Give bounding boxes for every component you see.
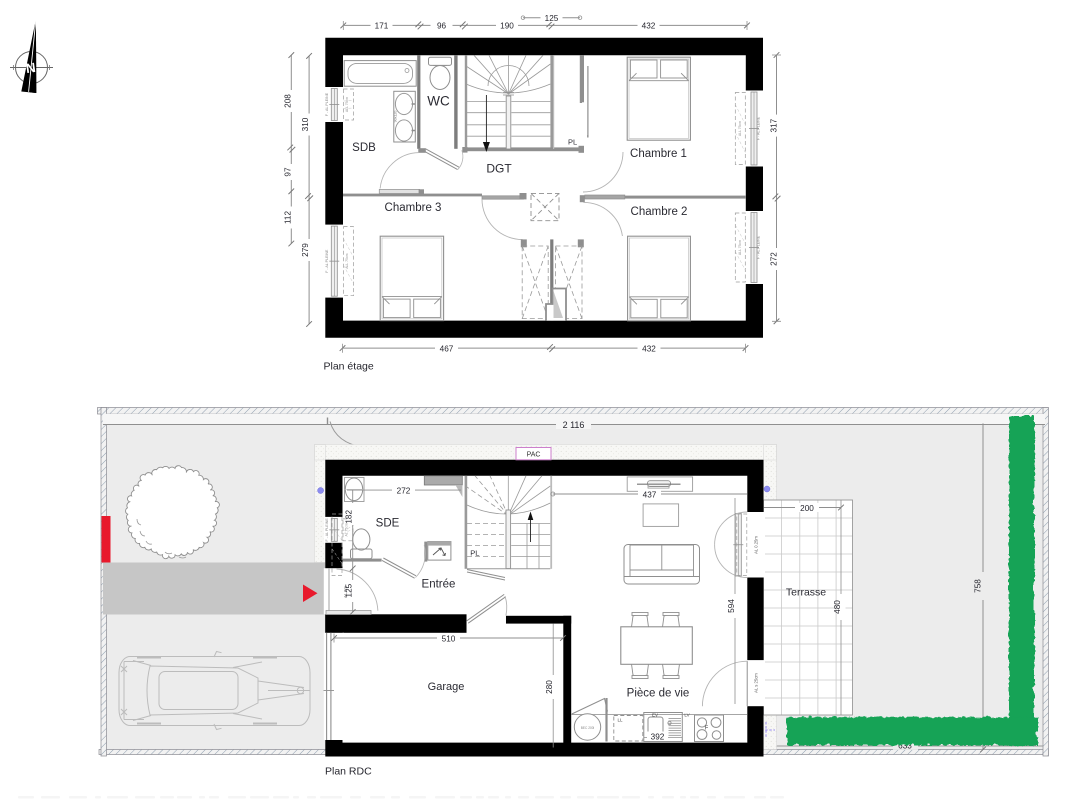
svg-text:310: 310 [301,117,310,131]
svg-text:Entrée: Entrée [422,579,456,591]
svg-text:Plan étage: Plan étage [324,361,374,373]
svg-text:PL: PL [568,138,577,147]
svg-text:200: 200 [800,504,814,513]
svg-text:Plan RDC: Plan RDC [325,766,372,778]
svg-text:Chambre 1: Chambre 1 [630,148,687,160]
svg-text:432: 432 [642,344,656,353]
svg-text:208: 208 [283,94,292,108]
svg-text:392: 392 [651,733,665,742]
svg-text:Garage: Garage [428,681,465,693]
svg-text:F - AL PLEINE: F - AL PLEINE [756,116,760,140]
svg-text:190: 190 [500,22,514,31]
svg-text:272: 272 [770,252,779,266]
svg-text:97: 97 [283,167,292,177]
svg-text:F - AL PLEINE: F - AL PLEINE [325,249,329,273]
svg-text:AL 0.25m: AL 0.25m [754,536,759,554]
svg-text:Chambre 3: Chambre 3 [385,202,442,214]
svg-text:ALL 75cm: ALL 75cm [738,240,742,255]
svg-text:Pièce de vie: Pièce de vie [627,688,690,700]
svg-text:480: 480 [833,600,842,614]
svg-text:LV: LV [684,713,689,718]
svg-text:112: 112 [283,211,292,224]
svg-text:280: 280 [545,680,554,694]
svg-text:Terrasse: Terrasse [786,587,826,599]
svg-text:F - AL PLEINE: F - AL PLEINE [325,92,329,116]
svg-text:758: 758 [974,579,983,593]
svg-text:SDB: SDB [352,142,376,154]
svg-text:Chambre 2: Chambre 2 [631,206,688,218]
svg-text:ALL 75cm: ALL 75cm [345,253,349,268]
svg-text:2 116: 2 116 [563,420,585,430]
svg-text:437: 437 [643,490,657,499]
svg-text:PAC: PAC [527,452,541,459]
svg-text:272: 272 [397,486,411,495]
svg-text:LL: LL [617,718,623,723]
svg-text:AL s 25cm: AL s 25cm [754,673,759,693]
svg-text:EV: EV [652,713,658,718]
svg-text:SDE: SDE [376,518,400,530]
svg-text:PL: PL [470,549,479,558]
svg-text:171: 171 [375,22,389,31]
svg-text:AL 75cm: AL 75cm [345,523,349,536]
svg-text:WC: WC [427,94,450,109]
svg-text:467: 467 [440,344,454,353]
svg-text:125: 125 [545,14,559,23]
svg-text:90x120: 90x120 [394,111,398,123]
svg-text:317: 317 [770,118,779,132]
svg-text:ALL 75cm: ALL 75cm [738,121,742,136]
svg-text:279: 279 [301,243,310,257]
svg-text:N: N [25,60,37,76]
svg-text:182: 182 [345,510,354,524]
svg-text:ALL 75cm: ALL 75cm [345,97,349,112]
svg-text:F - AL PLEINE: F - AL PLEINE [756,235,760,259]
svg-text:432: 432 [642,22,656,31]
svg-text:96: 96 [437,22,447,31]
svg-text:F - AL PLEINE: F - AL PLEINE [325,518,329,542]
svg-text:594: 594 [727,599,736,613]
svg-text:DGT: DGT [486,162,512,176]
svg-text:125: 125 [345,583,354,597]
svg-text:BEC 200l: BEC 200l [581,726,595,730]
svg-text:510: 510 [442,634,456,643]
